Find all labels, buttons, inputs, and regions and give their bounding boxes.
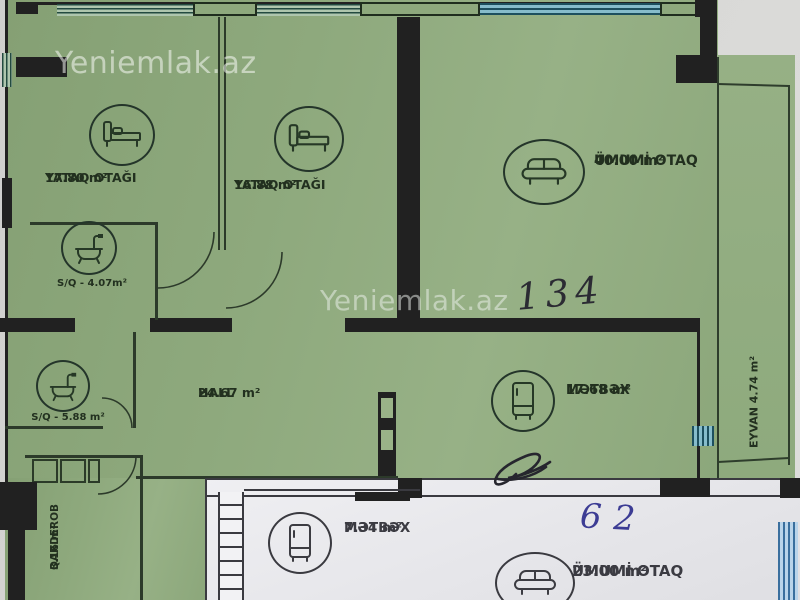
window-band [2, 53, 12, 87]
bathtub-icon [61, 221, 117, 275]
door-leaf [381, 430, 393, 450]
fridge-icon [268, 512, 332, 574]
wall [660, 478, 710, 497]
wardrobe-symbol [32, 459, 58, 483]
window-band [257, 4, 360, 16]
door-leaf [381, 398, 393, 418]
window-band [692, 426, 714, 446]
room-area: 40.00 m² [594, 153, 664, 171]
wall [2, 178, 12, 228]
window-band [480, 3, 660, 15]
room-label-bathroom2: S/Q - 5.88 m² [8, 412, 128, 425]
window-band [778, 522, 798, 600]
wall-pier [193, 2, 257, 16]
sofa-icon [503, 139, 585, 205]
wardrobe-symbol [60, 459, 86, 483]
watermark: Yeniemlak.az [55, 46, 257, 81]
wall [16, 2, 38, 14]
window-band [57, 4, 193, 16]
bed-icon [274, 106, 344, 172]
wall-pier [660, 2, 697, 16]
handwritten-number-62: 62 [579, 496, 648, 539]
wall [25, 455, 140, 458]
room-label-bathroom1: S/Q - 4.07m² [32, 278, 152, 291]
wall [133, 332, 136, 428]
window-band [218, 492, 244, 600]
wall [0, 318, 75, 332]
room-area: 17.80 m² [45, 170, 107, 186]
wall-pier [360, 2, 480, 16]
bathtub-icon [36, 360, 90, 412]
room-label-wardrobe: QARDEROB 3.16 m² [49, 486, 79, 570]
wall [780, 478, 800, 498]
wall [697, 332, 700, 478]
room-area: 7.34 m² [344, 520, 402, 538]
bed-icon [89, 104, 155, 166]
wall [5, 228, 8, 320]
room-area: 17.68 m² [566, 383, 631, 399]
room-area: 3.16 m² [49, 525, 62, 570]
wall [5, 87, 8, 180]
wall [676, 55, 717, 83]
floorplan-photo: YATAQ OTAĞI 17.80 m² YATAQ OTAĞI 16.88 m… [0, 0, 800, 600]
room-area: 23.00 m² [572, 562, 647, 582]
wall [345, 318, 700, 332]
wall [244, 489, 420, 491]
wall [140, 455, 143, 600]
wall [150, 318, 232, 332]
fridge-icon [491, 370, 555, 432]
wall [8, 530, 25, 600]
wall [355, 492, 410, 501]
wall [155, 225, 158, 320]
wardrobe-symbol [88, 459, 100, 483]
wall [397, 17, 420, 322]
handwritten-number-134: 134 [514, 268, 606, 319]
room-area: 16.88 m² [234, 177, 296, 193]
watermark: Yeniemlak.az [320, 284, 509, 317]
wall [0, 482, 37, 530]
wall [700, 15, 717, 57]
wall [5, 0, 8, 55]
room-area: 24.67 m² [198, 385, 260, 401]
wall [5, 426, 103, 429]
room-label-balcony: EYVAN 4.74 m² [748, 345, 764, 460]
